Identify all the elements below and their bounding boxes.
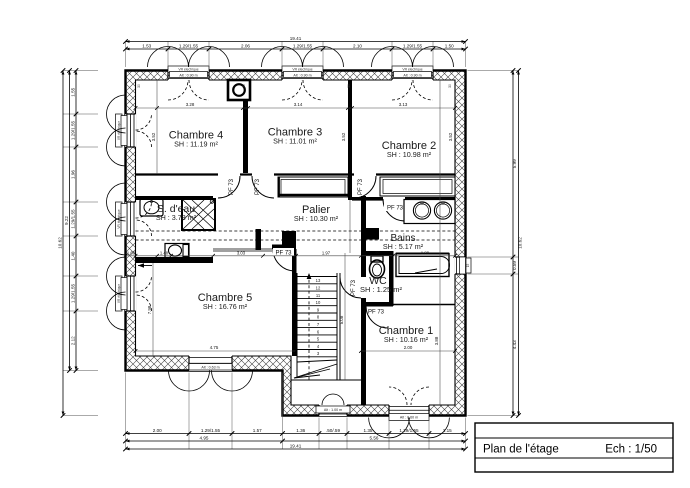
- svg-text:2.10: 2.10: [353, 44, 362, 49]
- svg-text:SH : 16.76 m²: SH : 16.76 m²: [203, 302, 248, 311]
- svg-text:VR électrique: VR électrique: [292, 68, 312, 72]
- svg-text:1.29/1.55: 1.29/1.55: [399, 428, 419, 433]
- svg-text:PF 73: PF 73: [358, 178, 364, 195]
- svg-text:VR électrique: VR électrique: [117, 121, 121, 140]
- svg-text:VR électrique: VR électrique: [402, 68, 422, 72]
- svg-text:1.53: 1.53: [142, 44, 151, 49]
- svg-text:1.48: 1.48: [160, 250, 169, 255]
- svg-text:Alt : 1.00 m: Alt : 1.00 m: [324, 408, 342, 412]
- svg-text:VR électrique: VR électrique: [178, 68, 198, 72]
- svg-text:7.98: 7.98: [147, 305, 152, 314]
- svg-text:4.43: 4.43: [512, 340, 517, 349]
- svg-text:19.41: 19.41: [290, 36, 302, 41]
- svg-text:4.95: 4.95: [200, 436, 209, 441]
- svg-text:5.08: 5.08: [339, 315, 344, 324]
- svg-text:1.55: 1.55: [71, 87, 76, 96]
- svg-text:1.36: 1.36: [296, 428, 305, 433]
- svg-text:2.00: 2.00: [153, 428, 162, 433]
- svg-text:1.97: 1.97: [322, 250, 331, 255]
- svg-text:5.56: 5.56: [370, 436, 379, 441]
- svg-text:Ech : 1/50: Ech : 1/50: [605, 444, 657, 456]
- svg-text:30: 30: [448, 84, 452, 88]
- svg-text:1.50: 1.50: [445, 44, 454, 49]
- svg-text:Plan de l'étage: Plan de l'étage: [483, 444, 559, 456]
- svg-text:1.29/1.55: 1.29/1.55: [201, 428, 221, 433]
- svg-text:1.15: 1.15: [443, 428, 452, 433]
- svg-text:1.96: 1.96: [71, 170, 76, 179]
- svg-text:PF 73: PF 73: [387, 206, 404, 212]
- svg-text:3.52: 3.52: [448, 132, 453, 141]
- svg-text:3.14: 3.14: [294, 102, 303, 107]
- svg-text:Alt : 0.90 m: Alt : 0.90 m: [403, 73, 421, 77]
- svg-text:3.52: 3.52: [341, 132, 346, 141]
- svg-text:3.03: 3.03: [237, 250, 246, 255]
- svg-text:Alt : 0.90 m: Alt : 0.90 m: [293, 73, 311, 77]
- svg-text:4.75: 4.75: [210, 345, 219, 350]
- svg-text:15: 15: [466, 264, 470, 268]
- svg-text:7: 7: [244, 103, 246, 107]
- svg-text:.50/.59: .50/.59: [326, 428, 340, 433]
- svg-text:PF 73: PF 73: [368, 310, 385, 316]
- svg-text:12: 12: [316, 286, 321, 291]
- svg-text:1.29/1.55: 1.29/1.55: [403, 44, 423, 49]
- svg-text:SH : 5.17 m²: SH : 5.17 m²: [383, 242, 424, 251]
- svg-text:7: 7: [349, 110, 351, 114]
- svg-text:11: 11: [316, 293, 321, 298]
- svg-text:19.41: 19.41: [290, 444, 302, 449]
- svg-text:30: 30: [137, 84, 141, 88]
- svg-text:SH : 3.78 m²: SH : 3.78 m²: [156, 213, 197, 222]
- svg-text:1.80: 1.80: [421, 250, 430, 255]
- svg-text:5.99: 5.99: [512, 159, 517, 168]
- svg-text:PF 73: PF 73: [229, 178, 235, 195]
- svg-text:1.29/1.55: 1.29/1.55: [71, 209, 76, 229]
- svg-text:30: 30: [242, 84, 246, 88]
- svg-text:SH : 10.30 m²: SH : 10.30 m²: [294, 214, 339, 223]
- svg-text:2.12: 2.12: [71, 336, 76, 345]
- svg-text:30: 30: [347, 84, 351, 88]
- svg-text:10: 10: [316, 300, 321, 305]
- svg-text:SH : 1.25 m²: SH : 1.25 m²: [360, 285, 403, 294]
- svg-text:10.62: 10.62: [517, 237, 522, 249]
- svg-text:0.59: 0.59: [512, 261, 517, 270]
- svg-text:1.35: 1.35: [364, 428, 373, 433]
- svg-text:3.52: 3.52: [151, 132, 156, 141]
- svg-text:.95: .95: [374, 251, 379, 255]
- svg-text:1.57: 1.57: [253, 428, 262, 433]
- svg-text:10.62: 10.62: [58, 237, 63, 249]
- svg-text:SH : 11.19 m²: SH : 11.19 m²: [174, 140, 218, 149]
- svg-text:9.22: 9.22: [64, 216, 69, 225]
- svg-text:SH : 10.98 m²: SH : 10.98 m²: [387, 150, 432, 159]
- svg-text:1.60: 1.60: [127, 250, 136, 255]
- svg-text:1.40: 1.40: [71, 251, 76, 260]
- svg-text:13: 13: [316, 278, 321, 283]
- svg-text:2.00: 2.00: [404, 345, 413, 350]
- svg-text:PF 73: PF 73: [351, 279, 357, 296]
- svg-text:1.29/1.55: 1.29/1.55: [71, 283, 76, 303]
- svg-text:1.29/1.55: 1.29/1.55: [71, 120, 76, 140]
- svg-text:SH : 11.01 m²: SH : 11.01 m²: [273, 137, 317, 146]
- svg-text:1.29/1.55: 1.29/1.55: [179, 44, 199, 49]
- svg-text:2.06: 2.06: [241, 44, 250, 49]
- svg-text:Alt : 0.90 m: Alt : 0.90 m: [179, 73, 197, 77]
- svg-text:Alt : 0.63 m: Alt : 0.63 m: [201, 366, 219, 370]
- svg-text:SH : 10.16 m²: SH : 10.16 m²: [384, 335, 429, 344]
- svg-text:1.29/1.55: 1.29/1.55: [293, 44, 313, 49]
- svg-text:3.88: 3.88: [434, 336, 439, 345]
- svg-text:3.13: 3.13: [399, 102, 408, 107]
- svg-text:3.28: 3.28: [186, 102, 195, 107]
- svg-text:PF 73: PF 73: [255, 178, 261, 195]
